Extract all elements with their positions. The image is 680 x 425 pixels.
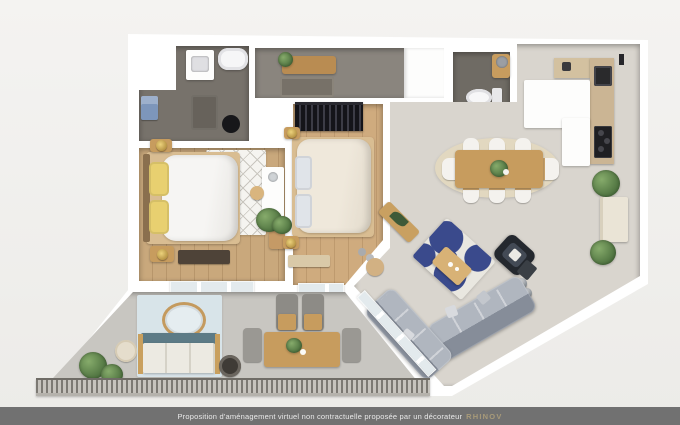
- bedroom2-pillow: [295, 194, 312, 228]
- bathtub: [218, 48, 248, 70]
- wc-lamp: [496, 56, 508, 68]
- caption-bar: Proposition d'aménagement virtuel non co…: [0, 407, 680, 425]
- hall-rug: [280, 77, 334, 97]
- kitchen-shelf: [600, 197, 628, 242]
- dining-chair: [489, 187, 505, 203]
- dining-chair: [463, 187, 479, 203]
- desk-mirror: [268, 172, 278, 182]
- floor-plan-canvas: Proposition d'aménagement virtuel non co…: [0, 0, 680, 425]
- entry-door-handle: [619, 54, 624, 65]
- bedroom1-lamp: [156, 140, 167, 151]
- bedroom2-pillow: [295, 156, 312, 190]
- bathroom-sink: [191, 56, 209, 72]
- caption-text: Proposition d'aménagement virtuel non co…: [177, 412, 462, 421]
- outdoor-sofa-arm: [138, 334, 143, 374]
- balcony-drum-table: [219, 355, 241, 377]
- coffee-table-cup: [448, 262, 453, 267]
- kitchen-cabinet-block: [562, 118, 590, 166]
- brand-logo: RHINOV: [466, 412, 502, 421]
- balcony-railing-rail: [36, 393, 430, 396]
- console-plant: [278, 52, 293, 67]
- bedroom1-duvet: [162, 155, 238, 241]
- bedroom1-pillow: [149, 200, 169, 234]
- bedroom2-bench: [288, 255, 330, 267]
- kitchen-plant: [590, 240, 616, 265]
- desk-stool: [250, 186, 264, 200]
- stove-burner: [598, 130, 604, 136]
- outdoor-chair: [342, 328, 361, 362]
- laundry-basket: [222, 115, 240, 133]
- outdoor-sofa-seat: [143, 343, 215, 373]
- outdoor-table-dish: [300, 349, 306, 355]
- dining-armchair: [542, 158, 559, 180]
- dining-chair: [515, 187, 531, 203]
- bedroom2-wardrobe: [295, 102, 363, 131]
- outdoor-chair: [243, 328, 262, 362]
- stove-burner: [598, 146, 604, 152]
- stove-burner: [604, 138, 610, 144]
- dining-dish: [503, 169, 509, 175]
- kitchen-counter-top: [554, 58, 590, 78]
- bedroom1-lamp: [157, 249, 168, 260]
- bedroom1-bench: [178, 250, 230, 264]
- bedroom1-plant: [272, 216, 292, 234]
- outdoor-chair-seat: [304, 314, 322, 330]
- kitchen-sink: [594, 66, 612, 86]
- entry-ottoman: [366, 258, 384, 276]
- bedroom2-lamp: [287, 128, 297, 138]
- bath-mat: [191, 95, 218, 130]
- bedroom2-lamp: [286, 238, 296, 248]
- hall-wardrobe: [404, 48, 444, 98]
- coffee-table-cup: [455, 267, 459, 271]
- kitchen-plant: [592, 170, 620, 197]
- bedroom1-window: [170, 281, 254, 293]
- outdoor-chair-seat: [278, 314, 296, 330]
- entry-stool: [358, 248, 366, 256]
- towel: [141, 96, 158, 120]
- outdoor-pouf: [115, 340, 137, 362]
- bedroom1-pillow: [149, 162, 169, 196]
- kitchen-small-appliance: [562, 62, 571, 71]
